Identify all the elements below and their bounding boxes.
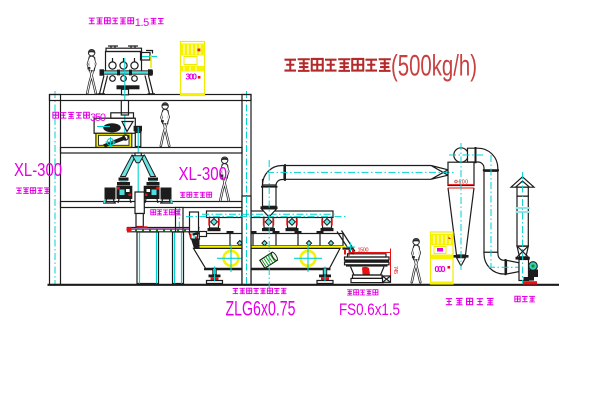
svg-text:300: 300: [186, 72, 198, 82]
svg-text:1.5: 1.5: [135, 17, 150, 29]
svg-text:000: 000: [435, 264, 446, 274]
svg-text:FS0.6x1.5: FS0.6x1.5: [339, 300, 400, 319]
svg-text:745: 745: [392, 266, 398, 274]
svg-text:XL-300: XL-300: [179, 163, 228, 184]
svg-text:350: 350: [90, 112, 106, 124]
svg-text:XL-300: XL-300: [14, 159, 62, 180]
svg-text:ZLG6x0.75: ZLG6x0.75: [226, 298, 296, 321]
svg-text:1500: 1500: [358, 248, 369, 254]
svg-text:(500kg/h): (500kg/h): [391, 50, 477, 83]
